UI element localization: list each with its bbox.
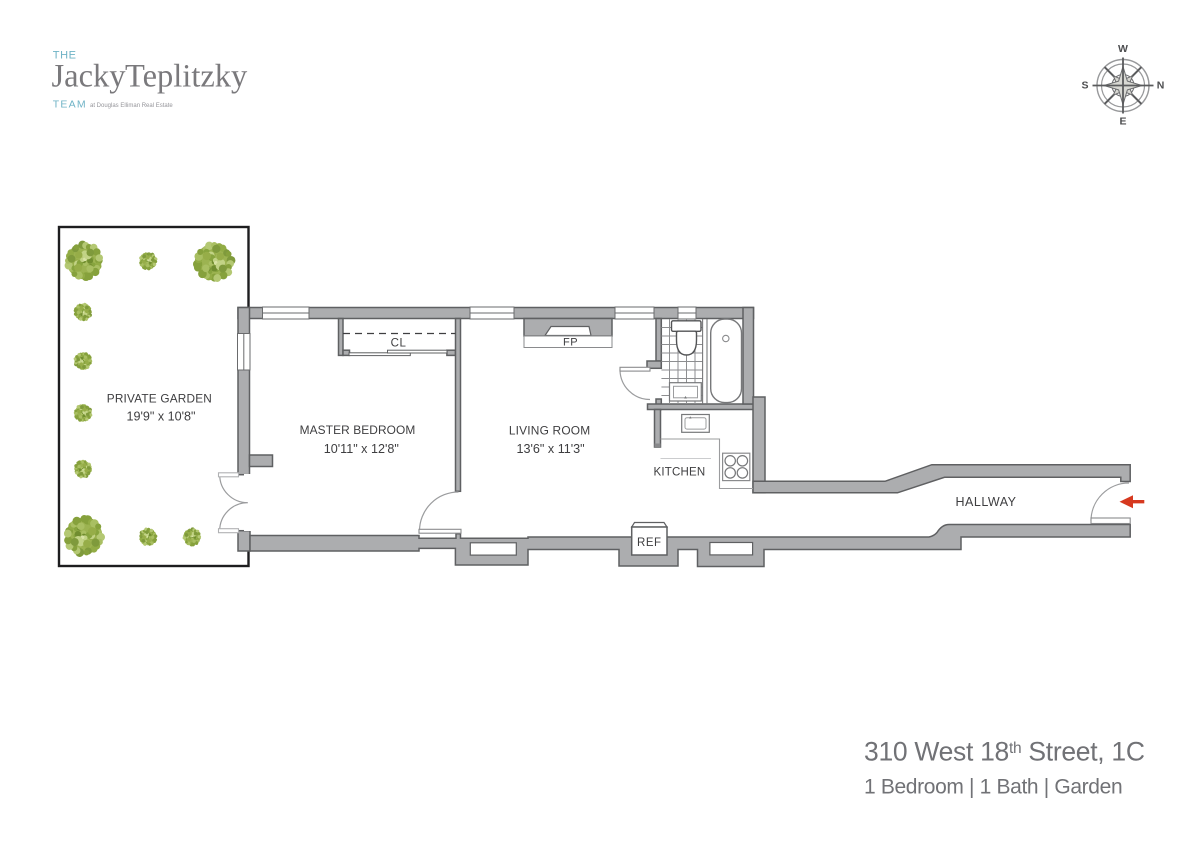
svg-text:FP: FP <box>563 336 578 348</box>
svg-text:19'9" x 10'8": 19'9" x 10'8" <box>126 410 195 424</box>
svg-text:10'11" x 12'8": 10'11" x 12'8" <box>324 442 399 456</box>
svg-text:13'6" x 11'3": 13'6" x 11'3" <box>517 442 585 456</box>
svg-text:at Douglas Elliman Real Estate: at Douglas Elliman Real Estate <box>90 103 173 109</box>
svg-text:S: S <box>1081 80 1088 92</box>
svg-text:Jacky: Jacky <box>52 59 127 95</box>
svg-text:E: E <box>1119 115 1126 127</box>
svg-text:Teplitzky: Teplitzky <box>125 59 248 95</box>
svg-text:N: N <box>1157 80 1165 92</box>
svg-text:MASTER BEDROOM: MASTER BEDROOM <box>300 423 416 437</box>
svg-text:310 West 18th Street, 1C: 310 West 18th Street, 1C <box>864 737 1145 767</box>
svg-text:W: W <box>1118 43 1128 55</box>
svg-text:REF: REF <box>637 537 662 549</box>
svg-text:KITCHEN: KITCHEN <box>653 467 705 479</box>
svg-text:PRIVATE GARDEN: PRIVATE GARDEN <box>107 391 212 405</box>
svg-text:TEAM: TEAM <box>53 99 87 111</box>
svg-text:1 Bedroom | 1 Bath | Garden: 1 Bedroom | 1 Bath | Garden <box>864 776 1122 799</box>
svg-text:CL: CL <box>391 337 407 349</box>
svg-text:HALLWAY: HALLWAY <box>956 495 1017 509</box>
svg-text:LIVING ROOM: LIVING ROOM <box>509 423 590 437</box>
